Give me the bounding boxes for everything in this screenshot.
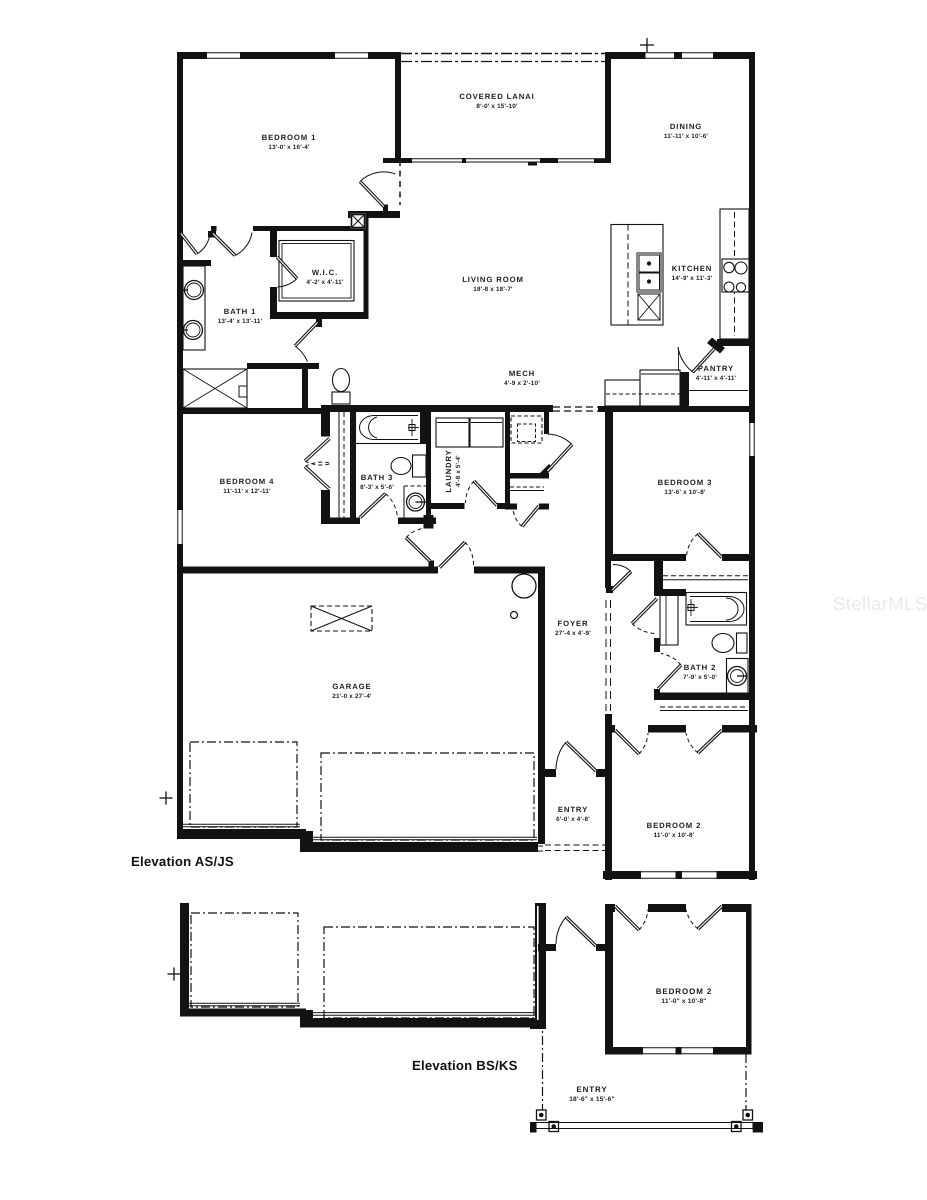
svg-text:KITCHEN: KITCHEN: [672, 264, 712, 273]
svg-text:Elevation BS/KS: Elevation BS/KS: [412, 1058, 518, 1073]
svg-text:27'-4 x 4'-9': 27'-4 x 4'-9': [555, 630, 591, 637]
svg-text:DINING: DINING: [670, 122, 702, 131]
svg-text:18'-6" x 15'-6": 18'-6" x 15'-6": [569, 1096, 615, 1103]
svg-text:4'-2' x 4'-11': 4'-2' x 4'-11': [306, 279, 343, 286]
svg-text:13'-6' x 10'-8': 13'-6' x 10'-8': [664, 489, 705, 496]
svg-text:11'-11' x 10'-6': 11'-11' x 10'-6': [664, 133, 709, 140]
svg-text:LAUNDRY: LAUNDRY: [444, 449, 453, 492]
svg-text:11'-0' x 10'-8': 11'-0' x 10'-8': [654, 832, 695, 839]
svg-text:BEDROOM 1: BEDROOM 1: [262, 133, 317, 142]
svg-text:4'-11' x 4'-11': 4'-11' x 4'-11': [696, 375, 737, 382]
svg-text:MECH: MECH: [509, 369, 535, 378]
svg-text:11'-0" x 10'-8": 11'-0" x 10'-8": [661, 998, 706, 1005]
svg-text:W.I.C.: W.I.C.: [312, 268, 338, 277]
svg-text:13'-0' x 16'-4': 13'-0' x 16'-4': [268, 144, 309, 151]
svg-text:4'-8 x 5'-4': 4'-8 x 5'-4': [455, 455, 462, 487]
svg-text:7'-9' x 5'-0': 7'-9' x 5'-0': [683, 674, 717, 681]
svg-text:FOYER: FOYER: [558, 619, 589, 628]
svg-text:8'-0' x 15'-10': 8'-0' x 15'-10': [476, 103, 517, 110]
svg-text:BEDROOM 2: BEDROOM 2: [647, 821, 702, 830]
svg-text:BATH 2: BATH 2: [684, 663, 717, 672]
svg-text:BEDROOM 3: BEDROOM 3: [658, 478, 713, 487]
svg-text:13'-4' x 13'-11': 13'-4' x 13'-11': [218, 318, 263, 325]
svg-text:4'-9 x 2'-10': 4'-9 x 2'-10': [504, 380, 540, 387]
svg-text:21'-0 x 27'-4': 21'-0 x 27'-4': [332, 693, 372, 700]
svg-text:18'-8 x 18'-7': 18'-8 x 18'-7': [473, 286, 513, 293]
svg-text:StellarMLS: StellarMLS: [833, 593, 927, 614]
svg-text:ENTRY: ENTRY: [558, 805, 588, 814]
svg-text:14'-9' x 11'-3': 14'-9' x 11'-3': [672, 275, 713, 282]
svg-text:BEDROOM 4: BEDROOM 4: [220, 477, 275, 486]
svg-text:Elevation AS/JS: Elevation AS/JS: [131, 854, 234, 869]
svg-text:BATH 1: BATH 1: [224, 307, 257, 316]
svg-text:GARAGE: GARAGE: [332, 682, 371, 691]
svg-text:COVERED LANAI: COVERED LANAI: [459, 92, 534, 101]
svg-text:BEDROOM 2: BEDROOM 2: [656, 987, 713, 996]
svg-text:PANTRY: PANTRY: [698, 364, 734, 373]
svg-text:8'-3' x 5'-6': 8'-3' x 5'-6': [360, 484, 394, 491]
svg-text:BATH 3: BATH 3: [361, 473, 394, 482]
svg-text:6'-0' x 4'-8': 6'-0' x 4'-8': [556, 816, 590, 823]
svg-text:ENTRY: ENTRY: [576, 1085, 607, 1094]
svg-text:11'-11' x 12'-11': 11'-11' x 12'-11': [223, 488, 271, 495]
svg-text:LIVING ROOM: LIVING ROOM: [462, 275, 524, 284]
